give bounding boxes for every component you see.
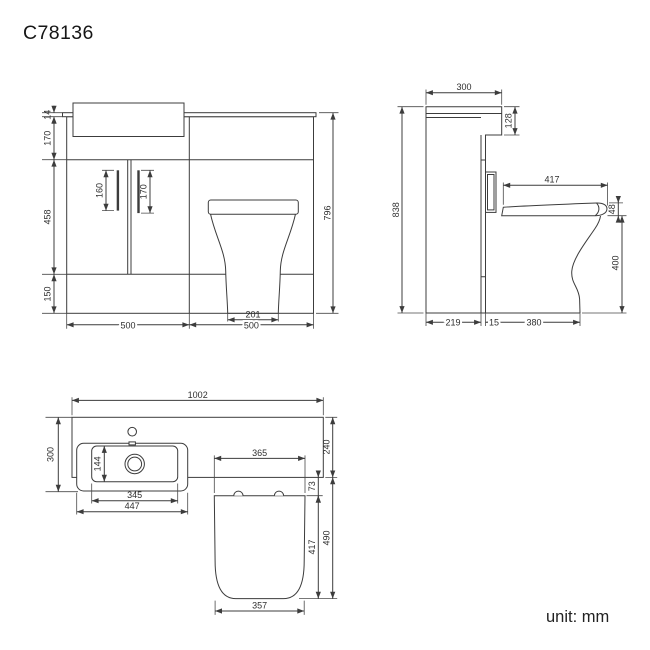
dim-front-overall-height: 796 (323, 205, 333, 220)
dim-side-seat-thickness: 48 (607, 204, 617, 214)
dim-plan-seat-projection: 490 (321, 530, 331, 545)
dim-plan-basin-width: 447 (125, 501, 140, 511)
dim-plan-counter-depth: 240 (321, 439, 331, 454)
product-code: C78136 (23, 22, 94, 44)
dim-plan-seat-hinge-width: 365 (252, 448, 267, 458)
dim-plan-seat-length: 417 (307, 539, 317, 554)
dim-side-top-depth: 300 (456, 82, 471, 92)
dim-side-cabinet-depth: 219 (445, 318, 460, 328)
overflow-slot (129, 442, 135, 445)
dim-front-door-section-height: 458 (43, 209, 53, 224)
basin-front (73, 103, 184, 137)
dim-front-right-handle: 170 (139, 184, 149, 199)
dim-plan-bowl-inner-depth: 144 (93, 456, 103, 471)
dim-plan-overall-width: 1002 (188, 390, 208, 400)
toilet-seat-plan (214, 496, 305, 599)
dim-plan-seat-front-width: 357 (252, 601, 267, 611)
drawing-canvas: C78136 14 170 458 150 160 170 796 201 5 (0, 0, 650, 650)
dim-side-pan-projection: 380 (526, 318, 541, 328)
dim-front-left-handle: 160 (95, 183, 105, 198)
toilet-seat-side (502, 203, 607, 216)
dim-plan-bowl-inner-width: 345 (127, 490, 142, 500)
dim-side-top-section-height: 128 (504, 113, 514, 128)
door-handle-left (117, 170, 119, 210)
dim-plan-basin-section-depth: 300 (46, 447, 56, 462)
dim-front-pan-base-width: 201 (245, 309, 260, 319)
dim-plan-hinge-setback: 73 (307, 481, 317, 491)
plan-view: 1002 300 144 345 447 365 73 417 490 240 … (46, 390, 338, 615)
technical-drawing: C78136 14 170 458 150 160 170 796 201 5 (0, 0, 650, 650)
dim-side-pan-front-height: 400 (611, 255, 621, 270)
dim-side-panel-gap: 15 (489, 318, 499, 328)
dim-front-wc-width: 500 (244, 320, 259, 330)
front-view: 14 170 458 150 160 170 796 201 500 500 (42, 103, 339, 330)
toilet-seat-front (208, 200, 298, 214)
dim-front-vanity-width: 500 (120, 320, 135, 330)
dim-front-upper-section-height: 170 (43, 131, 53, 146)
dim-front-plinth-height: 150 (43, 286, 53, 301)
toilet-pan-side-curve (572, 216, 601, 313)
side-view: 300 128 838 417 48 400 219 15 380 (391, 82, 627, 328)
dim-side-overall-height: 838 (391, 202, 401, 217)
seat-hinges (234, 491, 284, 496)
dim-side-seat-length: 417 (544, 175, 559, 185)
unit-note: unit: mm (546, 608, 609, 626)
dim-front-countertop-thickness: 14 (43, 110, 53, 120)
